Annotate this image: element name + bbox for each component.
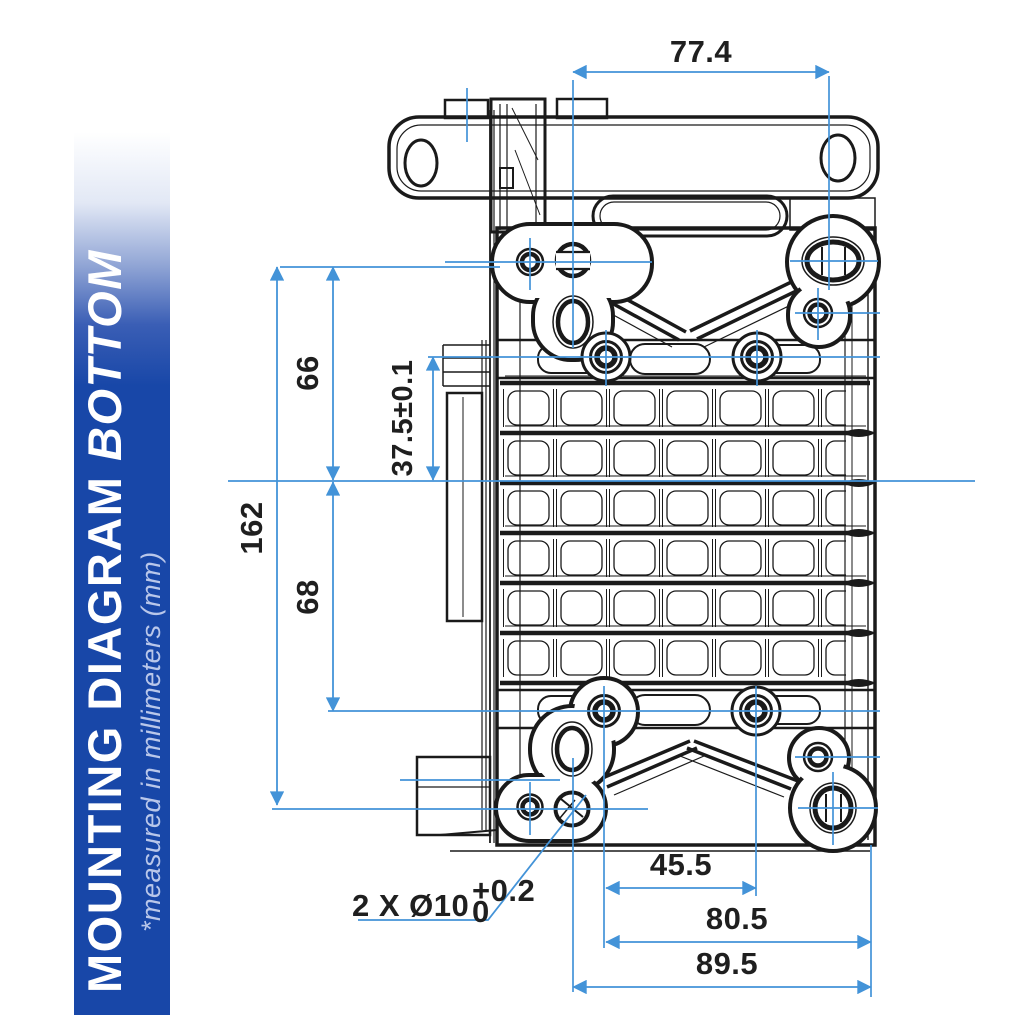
- bracket-slot-left: [405, 140, 437, 186]
- fin-tips: [843, 429, 876, 687]
- dim-bottom-mid: 80.5: [606, 901, 871, 942]
- bracket-slot-right: [821, 135, 855, 181]
- dim-bottom-inner: 45.5: [606, 847, 756, 888]
- dim-bottom-mid-label: 80.5: [706, 901, 768, 936]
- top-bracket: [389, 99, 878, 198]
- dim-lower-height-label: 68: [290, 579, 325, 614]
- hole-callout-tol-base: 0: [472, 894, 490, 929]
- top-tab-right: [557, 99, 607, 118]
- dim-offset-height: 37.5±0.1: [387, 357, 433, 480]
- dim-bottom-outer-label: 89.5: [696, 946, 758, 981]
- mount-post: [491, 99, 545, 232]
- engine-bottom-view: [389, 99, 879, 851]
- dim-total-height-label: 162: [234, 501, 269, 554]
- page: MOUNTING DIAGRAM BOTTOM *measured in mil…: [0, 0, 1024, 1024]
- side-panel: [447, 393, 482, 621]
- dim-lower-height: 68: [290, 482, 333, 711]
- dim-upper-height: 66: [290, 267, 333, 480]
- hole-callout-label: 2 X Ø10+0.20: [352, 873, 535, 929]
- dim-bottom-inner-label: 45.5: [650, 847, 712, 882]
- dim-total-height: 162: [234, 267, 277, 805]
- dim-top-width-label: 77.4: [670, 34, 733, 69]
- dim-upper-height-label: 66: [290, 355, 325, 390]
- mounting-diagram-drawing: 77.4 66 162 37.5±0.1 68 45.5: [0, 0, 1024, 1024]
- diagonal-ribs-bottom: [600, 741, 798, 797]
- hole-callout-text: 2 X Ø10: [352, 888, 469, 923]
- left-foot: [417, 757, 490, 835]
- cooling-fins: [500, 376, 876, 690]
- dim-top-width: 77.4: [573, 34, 829, 72]
- dim-offset-height-label: 37.5±0.1: [387, 360, 419, 477]
- dim-bottom-outer: 89.5: [573, 946, 871, 987]
